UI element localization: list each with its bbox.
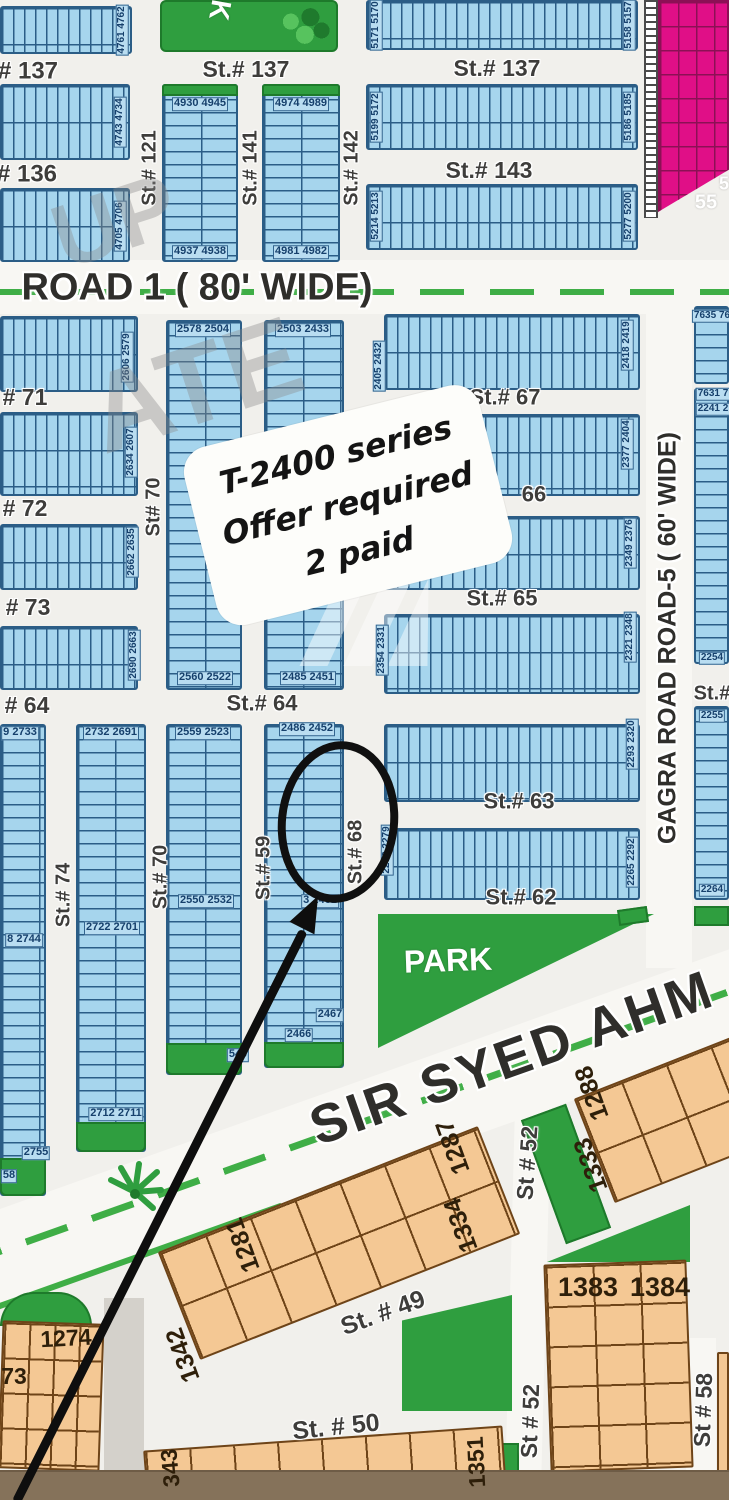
plot-block	[366, 84, 638, 150]
street-label: # 73	[6, 595, 51, 619]
railway-hatch	[644, 0, 658, 218]
plot-block	[76, 724, 146, 1152]
road1-name: ROAD 1 ( 80' WIDE)	[21, 267, 372, 310]
plot-block	[384, 828, 640, 900]
plot-block	[166, 724, 242, 1075]
green-cap	[264, 1042, 344, 1068]
green-sliver	[694, 906, 729, 926]
green-cap	[162, 84, 238, 96]
plot-block	[162, 84, 238, 262]
street-label: St# 70	[144, 478, 165, 537]
plot-block	[0, 724, 46, 1196]
plot-block	[0, 412, 138, 496]
plot-block-orange	[543, 1260, 693, 1473]
plot-block	[0, 524, 138, 590]
bottom-band	[0, 1470, 729, 1500]
street-label: St.# 143	[446, 158, 533, 182]
green-sliver	[617, 906, 649, 926]
green-quad	[402, 1295, 512, 1411]
green-cap	[0, 1158, 46, 1196]
plot-block-orange	[0, 1320, 105, 1471]
street-label: # 72	[3, 496, 48, 520]
street-label: St.# 74	[54, 863, 75, 927]
street-label: St.# 141	[241, 130, 262, 206]
plot-block	[366, 0, 638, 50]
plot-map: # 137St.# 137St.# 137# 136St.# 143St.# 1…	[0, 0, 729, 1500]
street-label: # 64	[5, 693, 50, 717]
plot-block	[262, 84, 340, 262]
plot-block	[0, 84, 130, 160]
green-cap	[76, 1122, 146, 1152]
green-cap	[262, 84, 340, 96]
plot-block	[384, 314, 640, 390]
plot-block	[694, 388, 729, 664]
street-label: St.# 137	[454, 56, 541, 80]
street-label: St.#	[694, 684, 729, 705]
street-label: St.# 137	[203, 57, 290, 81]
plot-block	[694, 306, 729, 384]
street-label: St.# 121	[140, 130, 161, 206]
plot-block	[0, 626, 138, 690]
map-label: 55	[695, 193, 717, 214]
plot-block	[694, 706, 729, 900]
tree-cluster	[274, 4, 330, 48]
street-label: # 136	[0, 161, 57, 186]
plot-block	[0, 6, 132, 54]
plot-block	[0, 188, 130, 262]
commercial-block	[658, 0, 729, 212]
map-label: 5	[719, 175, 729, 194]
street-label: St.# 142	[342, 130, 363, 206]
gagra-road-name: GAGRA ROAD ROAD-5 ( 60' WIDE)	[654, 432, 683, 844]
plot-block	[0, 316, 138, 392]
green-block-top	[160, 0, 338, 52]
street-label: # 137	[0, 58, 58, 83]
plot-block	[366, 184, 638, 250]
